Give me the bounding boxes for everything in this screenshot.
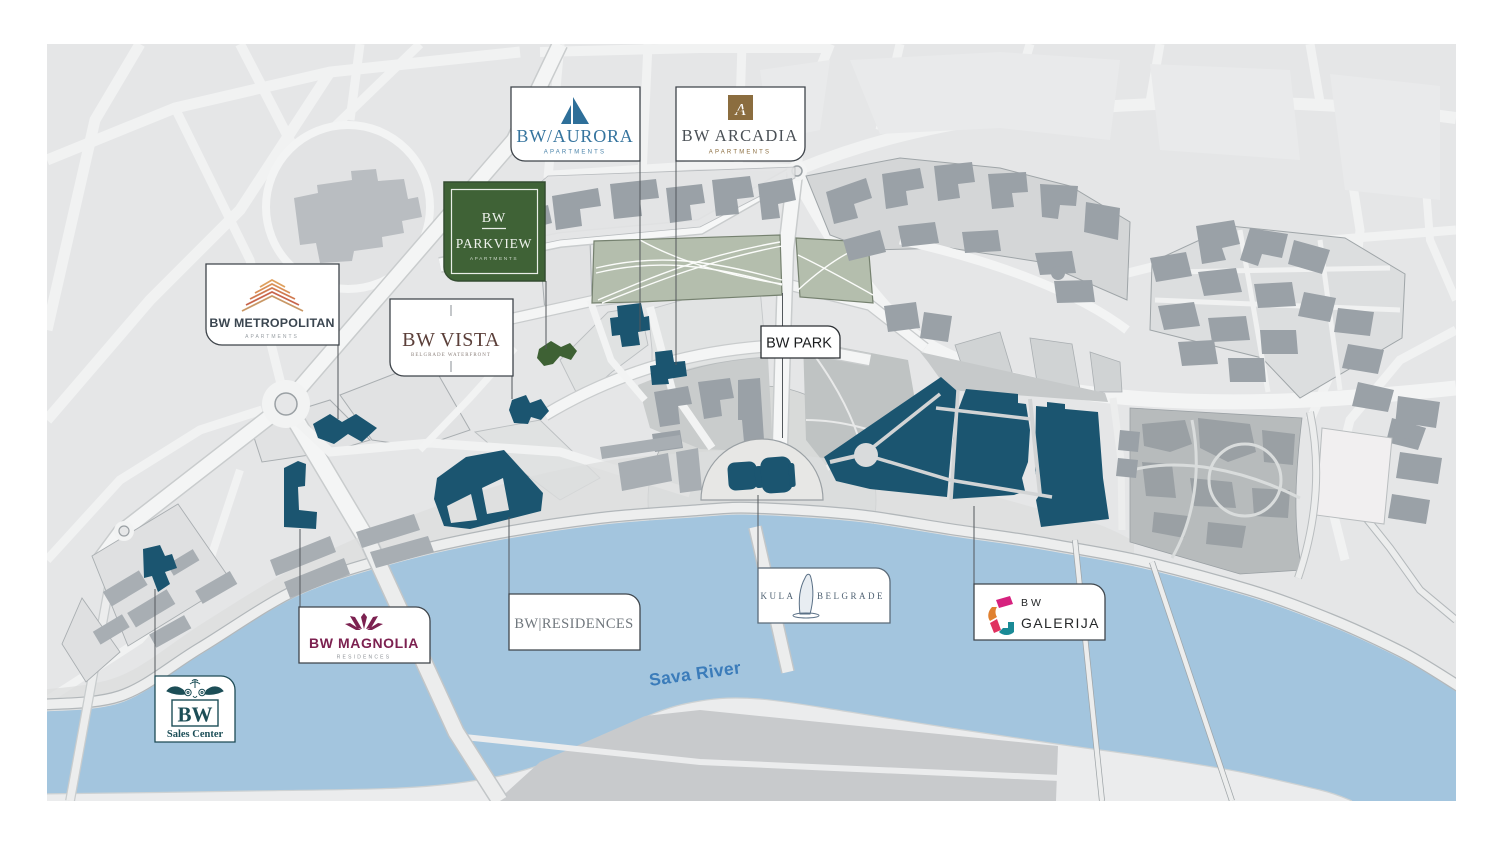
svg-text:BW ARCADIA: BW ARCADIA [682, 126, 799, 145]
svg-text:BW PARK: BW PARK [766, 336, 832, 352]
svg-text:BW METROPOLITAN: BW METROPOLITAN [209, 316, 334, 330]
svg-text:KULA: KULA [761, 591, 796, 601]
svg-text:BW: BW [177, 703, 212, 727]
svg-text:APARTMENTS: APARTMENTS [709, 150, 771, 156]
svg-text:APARTMENTS: APARTMENTS [470, 256, 518, 262]
svg-text:BW/AURORA: BW/AURORA [516, 126, 633, 146]
svg-text:BW|RESIDENCES: BW|RESIDENCES [514, 616, 633, 632]
svg-text:GALERIJA: GALERIJA [1021, 615, 1100, 631]
svg-text:PARKVIEW: PARKVIEW [456, 236, 532, 251]
svg-text:BW VISTA: BW VISTA [402, 329, 500, 351]
svg-text:RESIDENCES: RESIDENCES [337, 655, 392, 661]
svg-text:BELGRADE: BELGRADE [817, 591, 885, 601]
svg-text:BW MAGNOLIA: BW MAGNOLIA [309, 635, 419, 651]
svg-text:Sales Center: Sales Center [167, 729, 224, 740]
svg-text:APARTMENTS: APARTMENTS [544, 150, 606, 156]
svg-text:BW: BW [1021, 597, 1044, 609]
svg-text:BW: BW [482, 211, 507, 226]
svg-text:BELGRADE WATERFRONT: BELGRADE WATERFRONT [411, 353, 491, 358]
svg-text:APARTMENTS: APARTMENTS [245, 334, 299, 340]
